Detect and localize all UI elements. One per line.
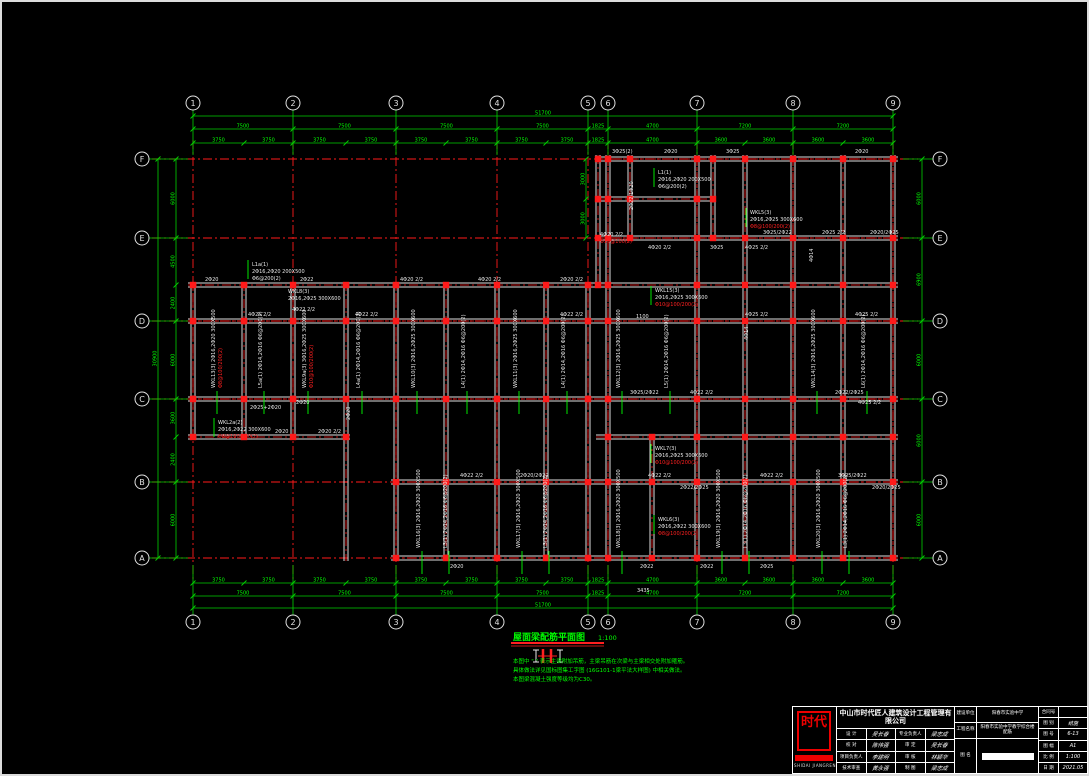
meta-row: 图 幅A1	[1039, 741, 1087, 752]
dimension-value: 3750	[313, 138, 326, 144]
dimension-value: 3750	[415, 578, 428, 584]
column	[840, 434, 846, 440]
grid-bubble-label: 5	[585, 99, 590, 108]
beam-annotation: 2Φ16,2Φ22 300X600	[658, 524, 711, 530]
dimension-value: 1825	[592, 138, 605, 144]
beam-annotation: WKL5(3)	[750, 210, 771, 216]
signature-row: 技术审查黄永强制 图梁志成	[837, 763, 954, 773]
grid-bubble-label: 6	[605, 99, 610, 108]
dimension-value: 7500	[338, 591, 351, 597]
drawing-name-label: 图 名	[955, 739, 977, 773]
beam-annotation: 4Φ14	[809, 249, 815, 262]
grid-bubble-label: 7	[694, 99, 699, 108]
grid-bubble-label: 5	[585, 618, 590, 627]
column	[742, 555, 748, 561]
column	[890, 396, 896, 402]
signature-name: 陈伟强	[867, 740, 897, 750]
beam-annotation: Φ6@200(2)	[658, 184, 687, 190]
column	[585, 396, 591, 402]
column	[605, 196, 611, 202]
column	[190, 434, 196, 440]
dimension-value: 6000	[171, 354, 177, 367]
column	[585, 555, 591, 561]
column	[790, 318, 796, 324]
dimension-value: 7200	[739, 591, 752, 597]
meta-value	[1059, 707, 1087, 717]
meta-fields: 合同号图 别结施图 号6-13图 幅A1比 例1:100日 期2021.05	[1039, 707, 1087, 773]
beam-annotation: WKL16(3) 2Φ16,2Φ20 300X500	[416, 469, 422, 548]
dimension-value: 30900	[153, 351, 159, 367]
meta-value: 6-13	[1059, 729, 1087, 739]
signature-name: 黄永强	[867, 763, 897, 773]
column	[241, 318, 247, 324]
plan-note-2: 具体做法详见国标图集工字图 (16G101-1梁平法大样图) 中相关做法。	[513, 666, 686, 674]
column	[605, 555, 611, 561]
column	[840, 318, 846, 324]
column	[190, 318, 196, 324]
dimension-value: 1825	[592, 591, 605, 597]
column	[543, 396, 549, 402]
meta-label: 日 期	[1039, 763, 1059, 773]
grid-bubble-label: 1	[190, 618, 195, 627]
column	[443, 396, 449, 402]
beam-annotation: L3(1) 2Φ14,2Φ16 Φ6@200(2)	[543, 474, 549, 548]
column	[241, 396, 247, 402]
grid-bubble-label: 9	[890, 618, 895, 627]
column	[694, 318, 700, 324]
dimension-value: 6000	[917, 192, 923, 205]
beam-annotation: Φ10@100(2)	[600, 239, 632, 245]
dimension-value: 7500	[536, 124, 549, 130]
column	[605, 479, 611, 485]
beam-annotation: L1(1)	[658, 170, 671, 176]
project-fields: 建设单位 阳春市实验中学 工程名称 阳春市实验中学教学综合楼 配筋 图 名	[955, 707, 1039, 773]
signature-name: 梁志成	[926, 763, 955, 773]
dimension-value: 1825	[592, 578, 605, 584]
meta-row: 图 号6-13	[1039, 729, 1087, 740]
grid-bubble-label: A	[139, 554, 145, 563]
meta-row: 合同号	[1039, 707, 1087, 718]
grid-bubble-label: 3	[393, 618, 398, 627]
drawing-name-redacted-bar	[982, 753, 1034, 760]
dimension-value: 1825	[592, 124, 605, 130]
column	[742, 156, 748, 162]
signature-grid: 设 计吴长春专业负责人梁志成校 对陈伟强审 定吴长春项目负责人李建明审 核林颖华…	[837, 729, 954, 773]
beam-annotation: WKL18(3) 2Φ16,2Φ20 300X500	[616, 469, 622, 548]
dimension-value: 6000	[917, 354, 923, 367]
beam-annotation: 2Φ25 2/2	[822, 230, 845, 236]
beam-annotation: 2Φ16,2Φ20 200X500	[252, 269, 305, 275]
beam-annotation: L4(1) 2Φ14,2Φ16 Φ6@200(2)	[561, 314, 567, 388]
column	[890, 318, 896, 324]
grid-bubble-label: 8	[790, 618, 795, 627]
beam-annotation: Φ8@100/200(2)	[750, 224, 790, 230]
beam-annotation: WKL20(3) 2Φ16,2Φ20 300X500	[816, 469, 822, 548]
column	[393, 479, 399, 485]
beam-annotation: 2Φ20	[664, 149, 677, 155]
beam-annotation: L3(1) 2Φ14,2Φ16 Φ6@200(2)	[843, 474, 849, 548]
grid-bubble-label: 4	[494, 99, 499, 108]
dimension-value: 3600	[812, 138, 825, 144]
column	[595, 156, 601, 162]
meta-row: 日 期2021.05	[1039, 763, 1087, 773]
company-seal-bar	[795, 755, 833, 761]
beam-annotation: 2Φ20	[296, 400, 309, 406]
column	[290, 434, 296, 440]
beam-annotation: Φ6@200(2)	[252, 276, 281, 282]
grid-centerlines	[152, 140, 918, 580]
column	[543, 318, 549, 324]
meta-label: 比 例	[1039, 752, 1059, 762]
column	[649, 555, 655, 561]
dimension-value: 51700	[535, 111, 551, 117]
beam-annotation: Φ8@100/200(2)	[658, 531, 698, 537]
dimension-value: 3600	[763, 138, 776, 144]
dimension-value: 7200	[739, 124, 752, 130]
beam-annotation: WKL13(3) 2Φ16,2Φ20 300X500	[211, 309, 217, 388]
company-logo-subtext: SHIDAI JIANGREN	[793, 763, 837, 768]
column	[543, 555, 549, 561]
dimension-value: 3750	[561, 138, 574, 144]
beam-annotation: L1a(1)	[252, 262, 268, 268]
dimension-value: 3600	[171, 412, 177, 425]
column	[393, 318, 399, 324]
beam-annotation: 3Φ25	[710, 245, 723, 251]
beam-annotation: 4Φ22 2/2	[760, 473, 783, 479]
beam-annotation: 2Φ25	[760, 564, 773, 570]
column	[840, 282, 846, 288]
dimension-value: 51700	[535, 603, 551, 609]
owner-label: 建设单位	[955, 707, 977, 722]
plan-note-1: 本图中 " " 表示主梁附加吊筋，主梁吊筋在次梁与主梁相交处附加箍筋。	[513, 657, 688, 665]
dimension-value: 7200	[837, 124, 850, 130]
beam-annotation: WKL7(3)	[655, 446, 676, 452]
beam-annotation: 2Φ16,2Φ20 200X500	[658, 177, 711, 183]
column	[494, 318, 500, 324]
beam-annotation: 2Φ22	[300, 277, 313, 283]
beam-annotation: L4a(1) 2Φ14,2Φ16 Φ6@200(2)	[356, 311, 362, 388]
column	[605, 156, 611, 162]
dimension-value: 3750	[465, 578, 478, 584]
column	[605, 282, 611, 288]
beam-annotation: 2Φ22/2Φ25	[680, 485, 709, 491]
beam-annotation: WKL15(3)	[655, 288, 680, 294]
beam-annotation: 4Φ20 2/2	[648, 245, 671, 251]
dimension-value: 3600	[763, 578, 776, 584]
beam-annotation: 3Φ25/2Φ22	[630, 390, 659, 396]
dimension-value: 2400	[171, 453, 177, 466]
dimension-value: 6000	[171, 514, 177, 527]
meta-value: 2021.05	[1059, 763, 1087, 773]
dimension-value: 7200	[837, 591, 850, 597]
beam-annotation: 3Φ25/2Φ22	[763, 230, 792, 236]
signature-name: 梁志成	[926, 729, 955, 739]
column	[543, 282, 549, 288]
grid-bubble-label: F	[938, 155, 943, 164]
grid-bubble-label: 2	[290, 618, 295, 627]
dimension-value: 3750	[561, 578, 574, 584]
column	[190, 282, 196, 288]
dimension-value: 7500	[237, 591, 250, 597]
grid-bubble-label: C	[937, 395, 943, 404]
beam-annotation: L5(1) 2Φ14,2Φ16 Φ6@200(2)	[664, 314, 670, 388]
beam-annotation: 4Φ22 2/2	[690, 390, 713, 396]
grid-bubble-label: D	[937, 317, 943, 326]
column	[190, 396, 196, 402]
plan-note-3: 本图梁混凝土强度等级均为C30。	[513, 675, 595, 683]
column	[742, 282, 748, 288]
column	[443, 318, 449, 324]
column	[393, 282, 399, 288]
meta-label: 合同号	[1039, 707, 1059, 717]
beam-annotation: 2Φ20	[205, 277, 218, 283]
column	[742, 434, 748, 440]
meta-label: 图 号	[1039, 729, 1059, 739]
column	[605, 396, 611, 402]
dimension-value: 3750	[365, 578, 378, 584]
beam-annotation: 2Φ16,2Φ25 300X600	[750, 217, 803, 223]
column	[710, 235, 716, 241]
project-label: 工程名称	[955, 723, 977, 738]
meta-label: 图 别	[1039, 718, 1059, 728]
beam-annotation: 2Φ20 2/2	[560, 277, 583, 283]
column	[890, 156, 896, 162]
beam-annotation: 2Φ20 2/2	[318, 429, 341, 435]
column	[694, 156, 700, 162]
column	[840, 396, 846, 402]
column	[790, 396, 796, 402]
beam-annotation: WKL9a(3) 3Φ16,2Φ25 300X600	[302, 309, 308, 388]
meta-value: 1:100	[1059, 752, 1087, 762]
beam-annotation: 4Φ25 2/2	[745, 312, 768, 318]
dimension-value: 7500	[338, 124, 351, 130]
column	[790, 555, 796, 561]
beam-annotation: WKL14(3) 2Φ16,2Φ25 300X600	[811, 309, 817, 388]
beam-annotation: 4Φ22 2/2	[648, 473, 671, 479]
beam-annotation: 2Φ25+2Φ20	[250, 405, 281, 411]
beam-annotation: 4Φ20 2/2	[600, 232, 623, 238]
beam-annotation: WKL17(3) 2Φ16,2Φ20 300X500	[516, 469, 522, 548]
dimension-value: 3600	[715, 578, 728, 584]
dimension-value: 3750	[415, 138, 428, 144]
dimension-value: 3000	[581, 212, 587, 225]
dimension-value: 4700	[646, 138, 659, 144]
beam-annotation: 3Φ25	[726, 149, 739, 155]
dimension-value: 4700	[646, 578, 659, 584]
beam-annotation: 2Φ20/2Φ25	[872, 485, 901, 491]
dimension-value: 2400	[171, 297, 177, 310]
dimension-value: 6000	[917, 434, 923, 447]
beam-annotation: 1100	[636, 314, 649, 320]
column	[393, 396, 399, 402]
beam-annotation: 2Φ20	[275, 429, 288, 435]
grid-bubble-label: B	[139, 478, 145, 487]
company-seal-icon: 时代	[797, 711, 831, 751]
dimension-value: 3750	[262, 138, 275, 144]
beam-annotation: L4(1) 2Φ14,2Φ16 Φ6@200(2)	[461, 314, 467, 388]
column	[790, 479, 796, 485]
dimension-value: 6000	[171, 192, 177, 205]
beam-annotation: 2Φ22	[700, 564, 713, 570]
column	[494, 396, 500, 402]
column	[790, 434, 796, 440]
beam-annotation: 3Φ25(2)	[612, 149, 633, 155]
grid-bubble-label: B	[937, 478, 943, 487]
beam-annotation: WKL2a(2)	[218, 420, 242, 426]
column	[694, 555, 700, 561]
grid-bubbles: 112233445566778899FFEEDDCCBBAA	[135, 96, 947, 629]
beam-annotation: 2Φ20	[855, 149, 868, 155]
grid-bubble-label: 3	[393, 99, 398, 108]
column	[605, 434, 611, 440]
dimension-value: 7500	[536, 591, 549, 597]
beam-annotation: 4Φ22 2/2	[460, 473, 483, 479]
beam-annotation: L3(1) 2Φ14,2Φ16 Φ6@200(2)	[743, 474, 749, 548]
beam-annotation: 4Φ20 2/2	[400, 277, 423, 283]
column	[494, 555, 500, 561]
dimension-value: 3000	[581, 173, 587, 186]
column	[443, 555, 449, 561]
title-block: 时代 SHIDAI JIANGREN 中山市时代匠人建筑设计工程管理有限公司 设…	[792, 706, 1088, 774]
column	[585, 282, 591, 288]
drawing-sheet: 5170075007500750075001825470072007200375…	[0, 0, 1089, 776]
column	[290, 318, 296, 324]
column	[694, 282, 700, 288]
column	[710, 196, 716, 202]
grid-bubble-label: 6	[605, 618, 610, 627]
dimension-value: 3750	[515, 138, 528, 144]
meta-row: 图 别结施	[1039, 718, 1087, 729]
dimension-value: 3750	[212, 578, 225, 584]
dimension-value: 3600	[812, 578, 825, 584]
dimension-value: 3750	[212, 138, 225, 144]
beam-annotation: WKL8(3)	[288, 289, 309, 295]
column	[742, 235, 748, 241]
beam-annotation: 4Φ14	[744, 327, 750, 340]
signature-name: 吴长春	[867, 729, 897, 739]
dimension-value: 4700	[646, 124, 659, 130]
column	[443, 282, 449, 288]
company-logo: 时代 SHIDAI JIANGREN	[793, 707, 837, 773]
column	[627, 156, 633, 162]
meta-value: 结施	[1059, 718, 1087, 728]
signature-role-label: 校 对	[837, 740, 867, 750]
signature-row: 校 对陈伟强审 定吴长春	[837, 740, 954, 751]
dimension-value: 3750	[465, 138, 478, 144]
beam-annotation: WKL10(3) 2Φ16,2Φ25 300X600	[411, 309, 417, 388]
grid-bubble-label: 4	[494, 618, 499, 627]
dimension-value: 3600	[862, 578, 875, 584]
column	[605, 318, 611, 324]
column	[241, 282, 247, 288]
grid-bubble-label: F	[140, 155, 145, 164]
dimension-value: 3750	[262, 578, 275, 584]
dimension-value: 4500	[171, 255, 177, 268]
signature-role-label: 审 核	[896, 752, 926, 762]
meta-label: 图 幅	[1039, 741, 1059, 751]
dimension-value: 7500	[440, 591, 453, 597]
column	[694, 235, 700, 241]
column	[890, 555, 896, 561]
grid-bubble-label: D	[139, 317, 145, 326]
grid-bubble-label: A	[937, 554, 943, 563]
grid-bubble-label: E	[139, 234, 144, 243]
grid-bubble-label: E	[937, 234, 942, 243]
signature-role-label: 技术审查	[837, 763, 867, 773]
beam-annotation: 4Φ20 2/2	[478, 277, 501, 283]
beam-plan-canvas: 5170075007500750075001825470072007200375…	[0, 0, 1089, 776]
column	[290, 282, 296, 288]
grid-bubble-label: C	[139, 395, 145, 404]
beam-annotation: 4Φ25 2/2	[858, 400, 881, 406]
column	[343, 318, 349, 324]
column	[742, 396, 748, 402]
signature-row: 设 计吴长春专业负责人梁志成	[837, 729, 954, 740]
beam-annotation: 2Φ20	[346, 407, 352, 420]
column	[742, 318, 748, 324]
column	[840, 156, 846, 162]
column	[595, 196, 601, 202]
column	[343, 282, 349, 288]
dimension-value: 6900	[917, 273, 923, 286]
column	[694, 196, 700, 202]
dimension-value: 3600	[862, 138, 875, 144]
beam-annotation: 2Φ22/1Φ20	[629, 181, 635, 210]
beam-annotation: 2Φ16,2Φ25 300X600	[288, 296, 341, 302]
signature-role-label: 专业负责人	[896, 729, 926, 739]
beam-annotation: 2Φ20/2Φ25	[870, 230, 899, 236]
column	[585, 318, 591, 324]
column	[343, 396, 349, 402]
signature-row: 项目负责人李建明审 核林颖华	[837, 752, 954, 763]
beam-annotation: Φ10@100/200(2)	[655, 460, 698, 466]
beam-annotation: WKL6(3)	[658, 517, 679, 523]
project-value: 阳春市实验中学教学综合楼 配筋	[977, 723, 1038, 738]
beam-annotation: 4Φ25 2/2	[745, 245, 768, 251]
signature-name: 林颖华	[926, 752, 955, 762]
signature-role-label: 制 图	[896, 763, 926, 773]
signature-role-label: 项目负责人	[837, 752, 867, 762]
column	[343, 434, 349, 440]
dimension-value: 7500	[440, 124, 453, 130]
signature-role-label: 设 计	[837, 729, 867, 739]
column	[694, 396, 700, 402]
column	[649, 479, 655, 485]
grid-bubble-label: 8	[790, 99, 795, 108]
column	[840, 555, 846, 561]
dimension-value: 3750	[365, 138, 378, 144]
beam-annotation: 2Φ16,2Φ22 300X600	[218, 427, 271, 433]
signature-name: 李建明	[867, 752, 897, 762]
beam-annotations: 3Φ25(2)2Φ203Φ252Φ202Φ22/1Φ20L1(1)2Φ16,2Φ…	[205, 149, 901, 594]
plan-scale: 1:100	[598, 634, 617, 642]
grid-bubble-label: 1	[190, 99, 195, 108]
dimension-value: 3750	[515, 578, 528, 584]
plan-title: 屋面梁配筋平面图	[513, 631, 585, 643]
beam-annotation: L5a(1) 2Φ14,2Φ16 Φ6@200(2)	[258, 311, 264, 388]
beam-annotation: 2Φ16,2Φ25 300X600	[655, 453, 708, 459]
grid-bubble-label: 2	[290, 99, 295, 108]
beam-annotation: 2Φ22	[640, 564, 653, 570]
column	[694, 434, 700, 440]
signature-role-label: 审 定	[896, 740, 926, 750]
meta-row: 比 例1:100	[1039, 752, 1087, 763]
column	[890, 434, 896, 440]
beam-annotation: L6(1) 2Φ14,2Φ16 Φ6@200(2)	[861, 314, 867, 388]
beam-annotation: 2Φ20	[450, 564, 463, 570]
beam-annotation: Φ8@100/200(2)	[218, 434, 258, 440]
column	[710, 156, 716, 162]
